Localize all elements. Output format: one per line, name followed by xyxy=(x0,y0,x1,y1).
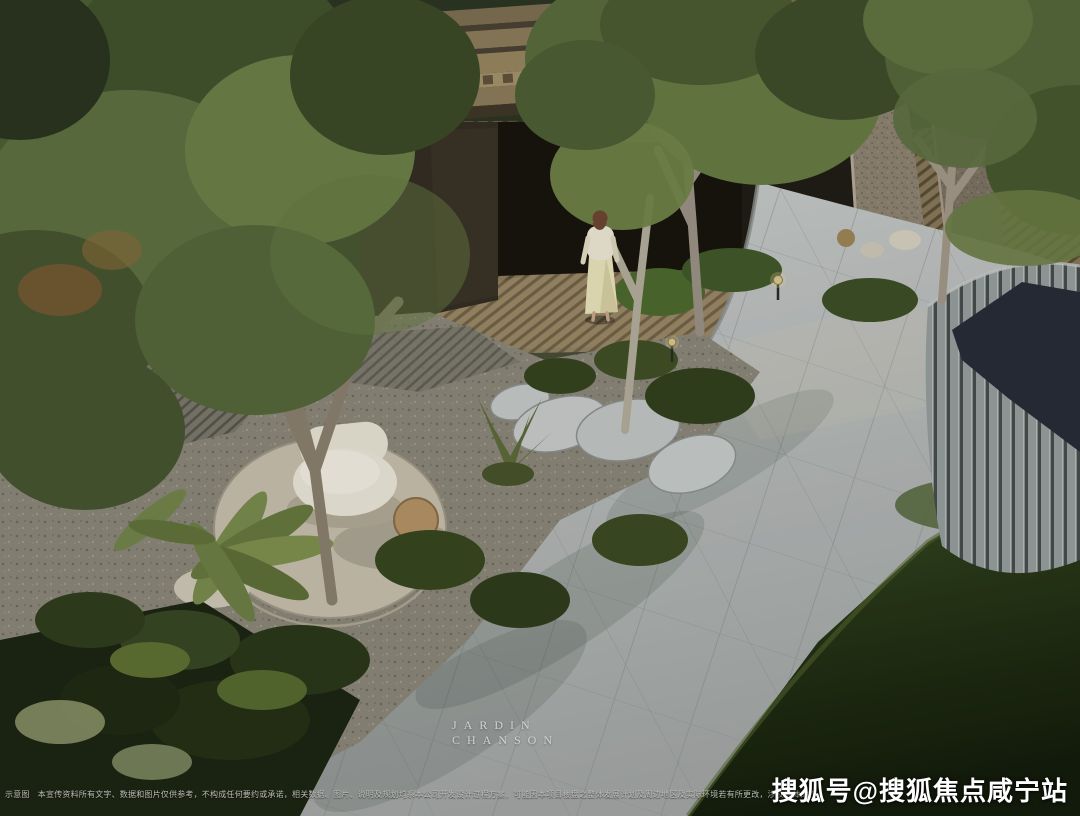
scene-canvas xyxy=(0,0,1080,816)
courtyard-rendering: JARDIN CHANSON 示意图 本宣传资料所有文字、数据和图片仅供参考，不… xyxy=(0,0,1080,816)
vignette xyxy=(0,0,1080,816)
